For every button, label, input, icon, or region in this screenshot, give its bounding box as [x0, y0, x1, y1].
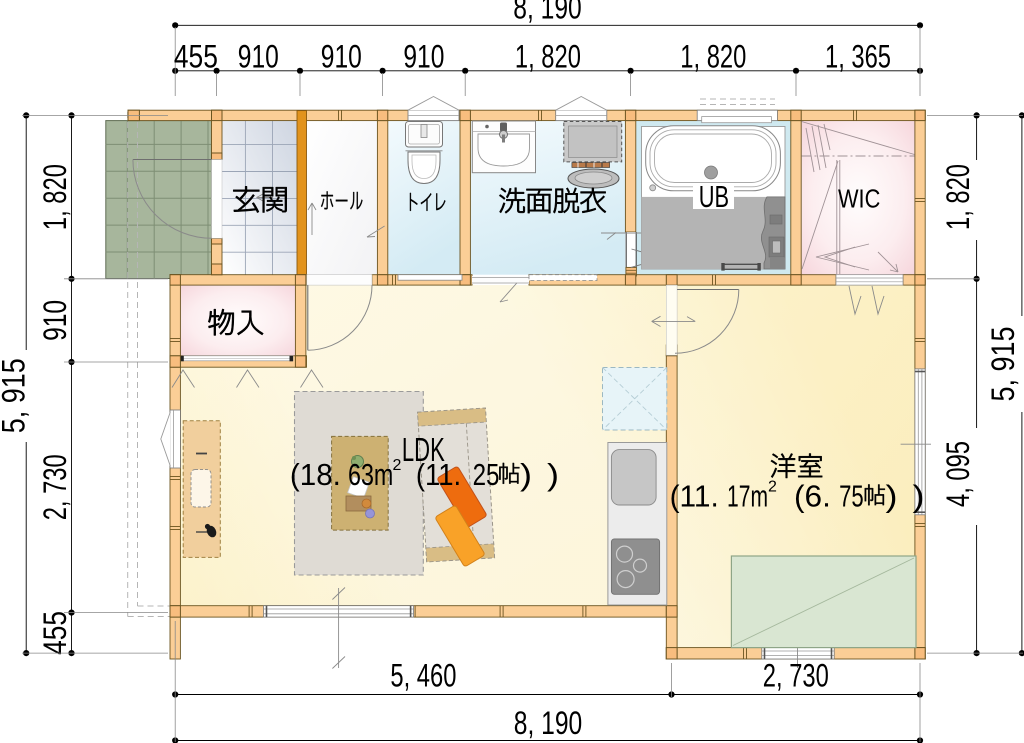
svg-text:): ) — [886, 479, 898, 514]
svg-text:1, 820: 1, 820 — [680, 39, 746, 75]
svg-text:(11.: (11. — [670, 479, 719, 514]
svg-text:2: 2 — [768, 479, 777, 496]
svg-text:910: 910 — [238, 39, 279, 75]
svg-text:): ) — [913, 479, 925, 514]
svg-text:63m: 63m — [348, 457, 393, 492]
svg-text:1, 820: 1, 820 — [940, 164, 976, 230]
svg-text:(6.: (6. — [794, 479, 831, 514]
svg-text:17m: 17m — [727, 479, 768, 514]
svg-text:): ) — [520, 457, 532, 492]
svg-text:910: 910 — [403, 39, 444, 75]
svg-text:): ) — [547, 457, 559, 492]
svg-text:WIC: WIC — [838, 184, 880, 214]
svg-text:910: 910 — [321, 39, 362, 75]
svg-text:8, 190: 8, 190 — [513, 0, 582, 26]
svg-text:5, 915: 5, 915 — [985, 327, 1021, 402]
svg-text:1, 365: 1, 365 — [825, 39, 891, 75]
svg-text:910: 910 — [37, 300, 73, 341]
svg-text:8, 190: 8, 190 — [514, 705, 583, 741]
svg-text:4, 095: 4, 095 — [940, 441, 976, 507]
svg-text:455: 455 — [37, 611, 73, 655]
svg-text:2: 2 — [393, 457, 402, 474]
svg-text:1, 820: 1, 820 — [515, 39, 581, 75]
svg-text:2, 730: 2, 730 — [763, 658, 829, 694]
svg-text:(18.: (18. — [290, 457, 341, 492]
svg-text:5, 915: 5, 915 — [0, 358, 32, 433]
svg-text:(11.: (11. — [416, 457, 461, 492]
svg-text:1, 820: 1, 820 — [37, 164, 73, 230]
svg-text:455: 455 — [174, 39, 218, 75]
svg-text:5, 460: 5, 460 — [390, 658, 456, 694]
svg-text:UB: UB — [699, 179, 729, 214]
svg-text:2, 730: 2, 730 — [37, 454, 73, 520]
svg-text:75: 75 — [839, 479, 864, 514]
svg-text:25: 25 — [473, 457, 500, 492]
